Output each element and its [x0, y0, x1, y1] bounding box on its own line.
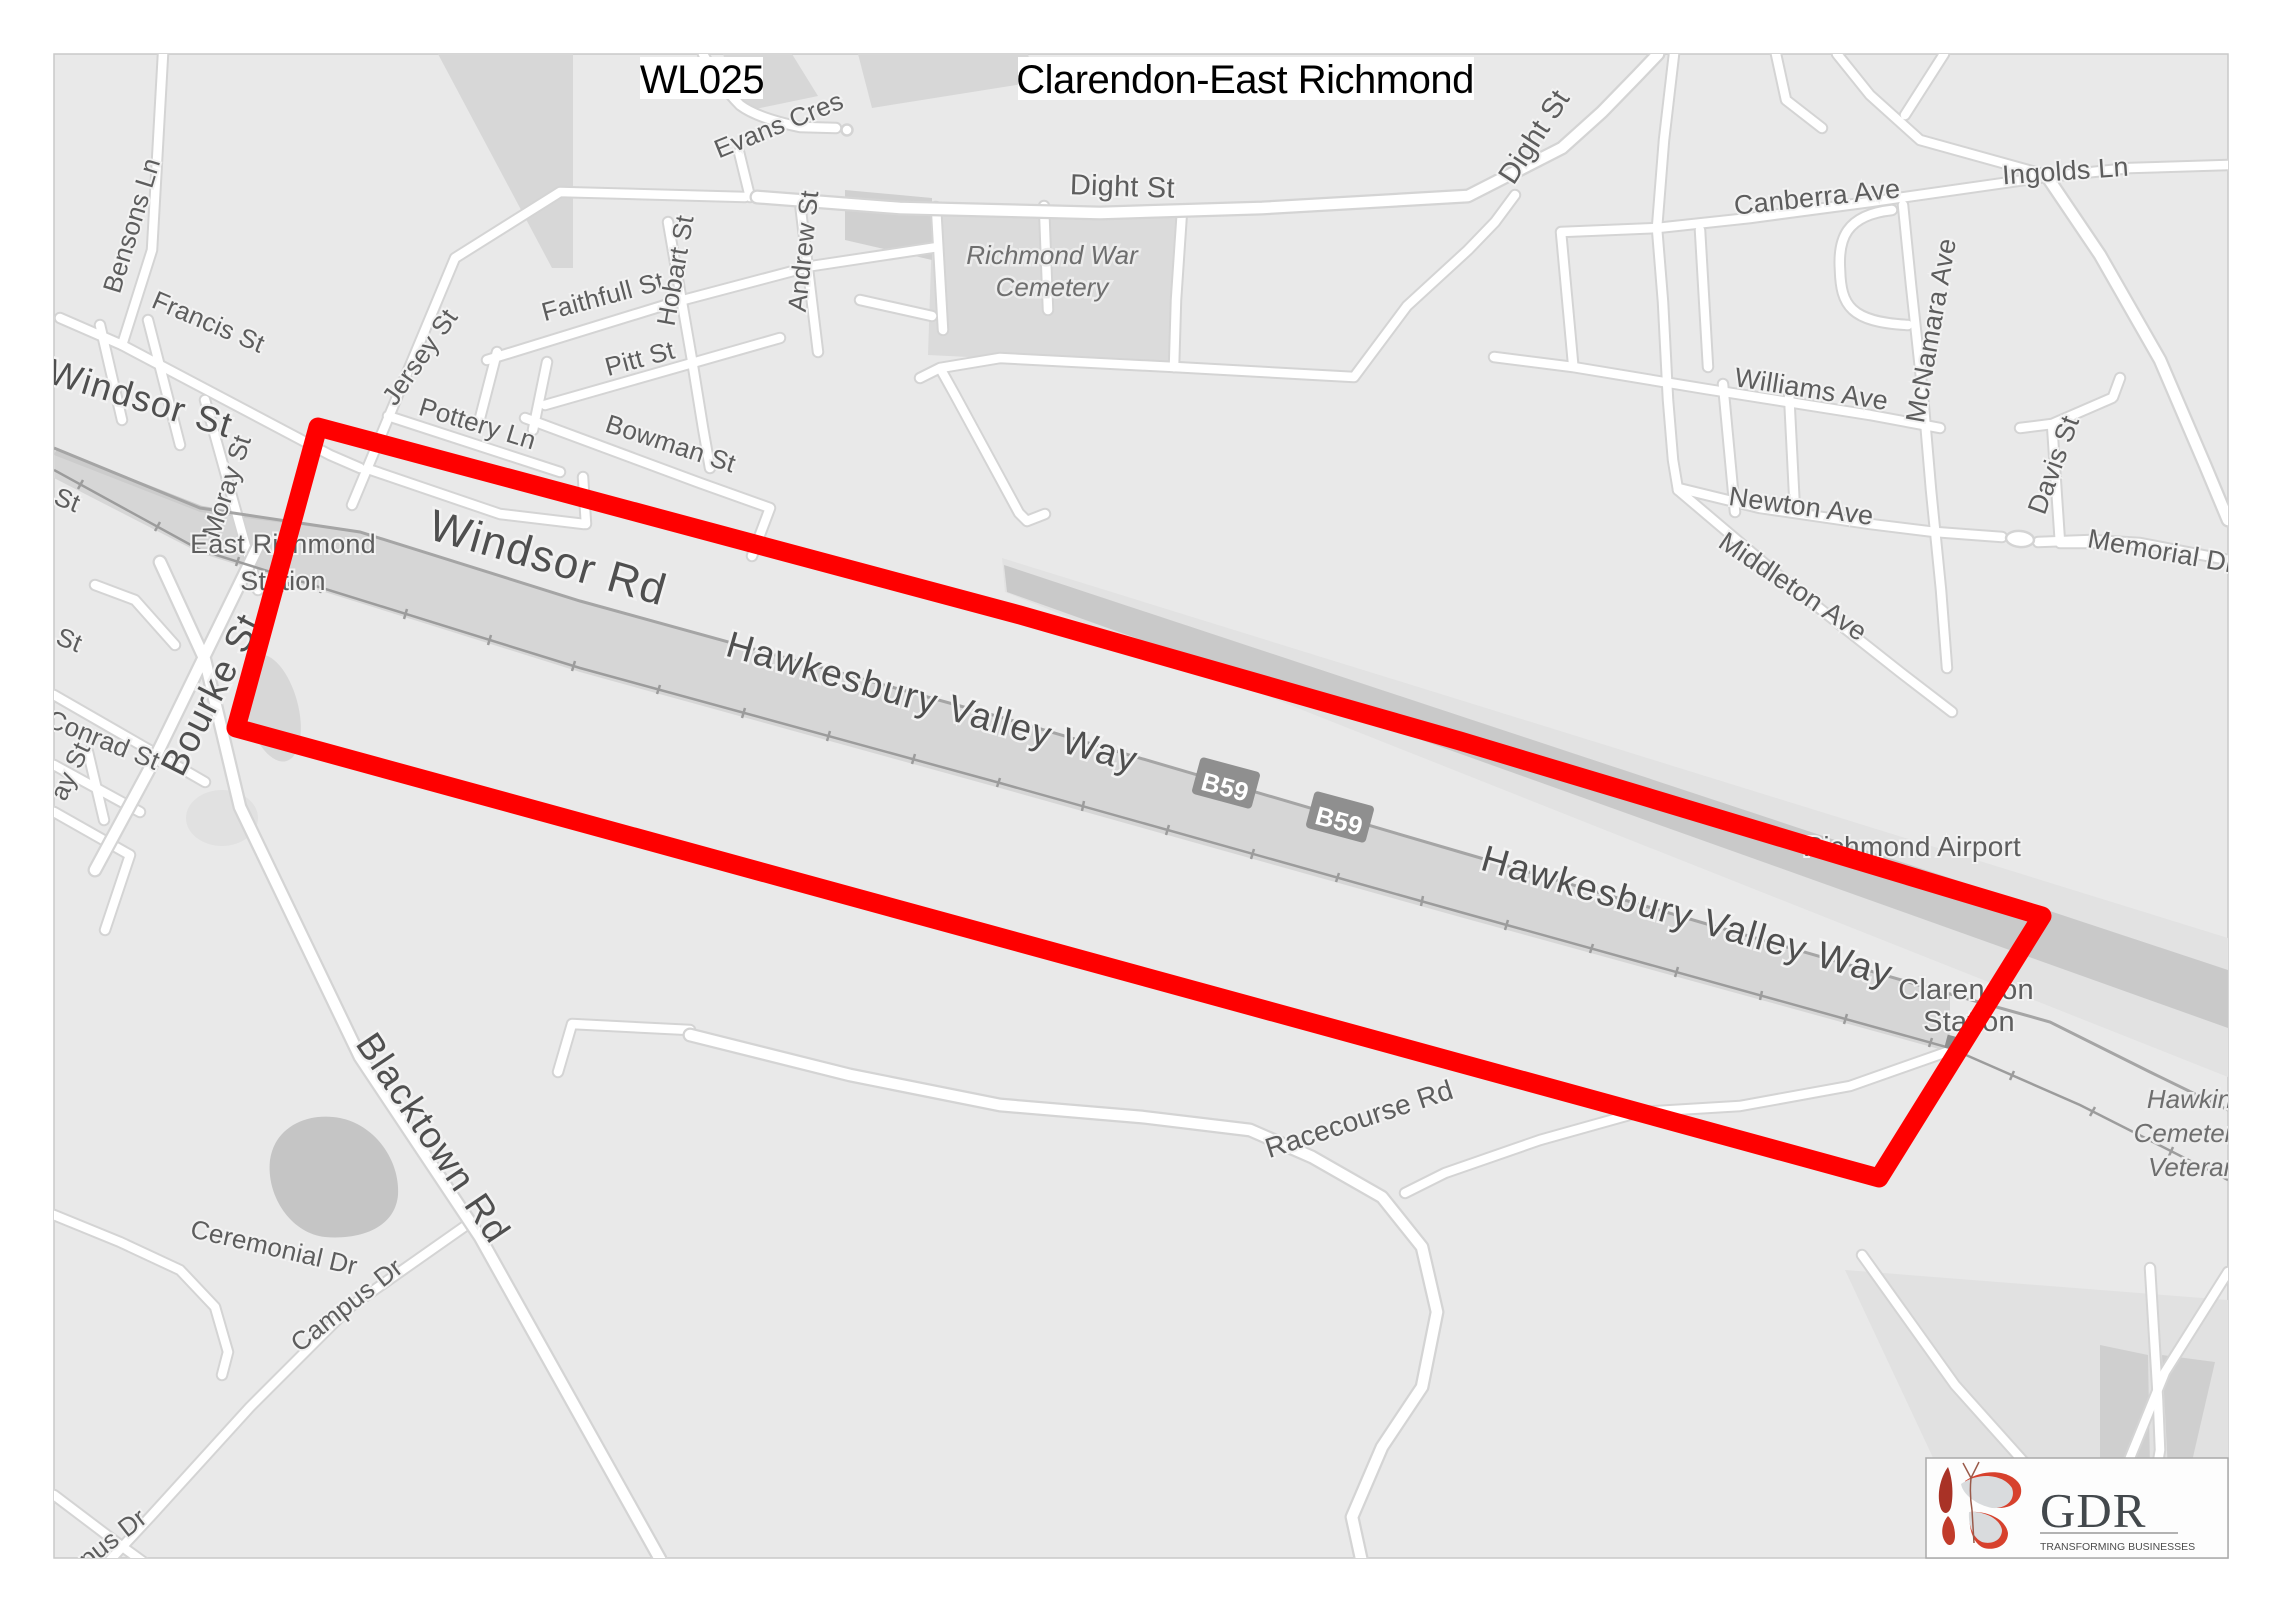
- svg-text:WL025: WL025: [640, 58, 764, 102]
- svg-text:Richmond War: Richmond War: [966, 240, 1139, 270]
- svg-text:TRANSFORMING BUSINESSES: TRANSFORMING BUSINESSES: [2040, 1541, 2195, 1553]
- svg-text:Cemetery: Cemetery: [996, 272, 1111, 302]
- svg-text:Dight St: Dight St: [1069, 169, 1175, 205]
- svg-text:Veteran: Veteran: [2148, 1152, 2238, 1182]
- svg-text:Clarendon-East Richmond: Clarendon-East Richmond: [1016, 58, 1474, 102]
- svg-text:GDR: GDR: [2040, 1483, 2146, 1538]
